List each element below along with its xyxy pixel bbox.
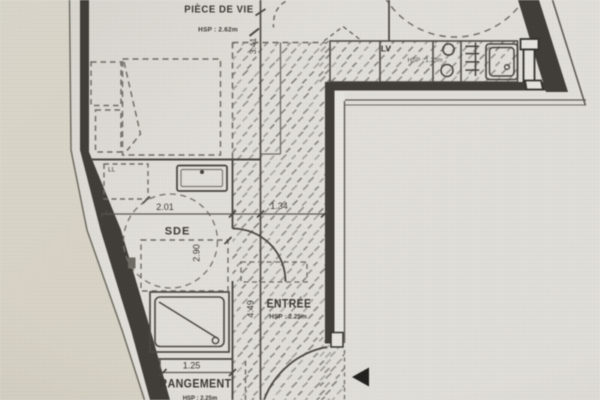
svg-text:4.49: 4.49 [246,300,256,318]
svg-text:PIÈCE DE VIE: PIÈCE DE VIE [184,4,253,15]
svg-text:ENTRÉE: ENTRÉE [267,297,312,311]
svg-text:RANGEMENT: RANGEMENT [160,378,232,390]
svg-text:2.90: 2.90 [192,244,202,262]
svg-text:LL: LL [108,167,116,174]
svg-text:3.41: 3.41 [248,37,258,54]
svg-text:HSP : 2.62m: HSP : 2.62m [198,27,238,34]
svg-text:LV: LV [381,44,392,54]
svg-text:HSP : 2.25m: HSP : 2.25m [269,314,307,321]
svg-text:SDE: SDE [165,226,191,238]
svg-text:2.01: 2.01 [156,202,174,212]
svg-text:1.25: 1.25 [183,361,201,371]
svg-text:HSP : 2.25m: HSP : 2.25m [183,396,218,400]
svg-text:1.34: 1.34 [270,201,288,211]
svg-text:HSP : 1.25m: HSP : 1.25m [408,57,443,64]
